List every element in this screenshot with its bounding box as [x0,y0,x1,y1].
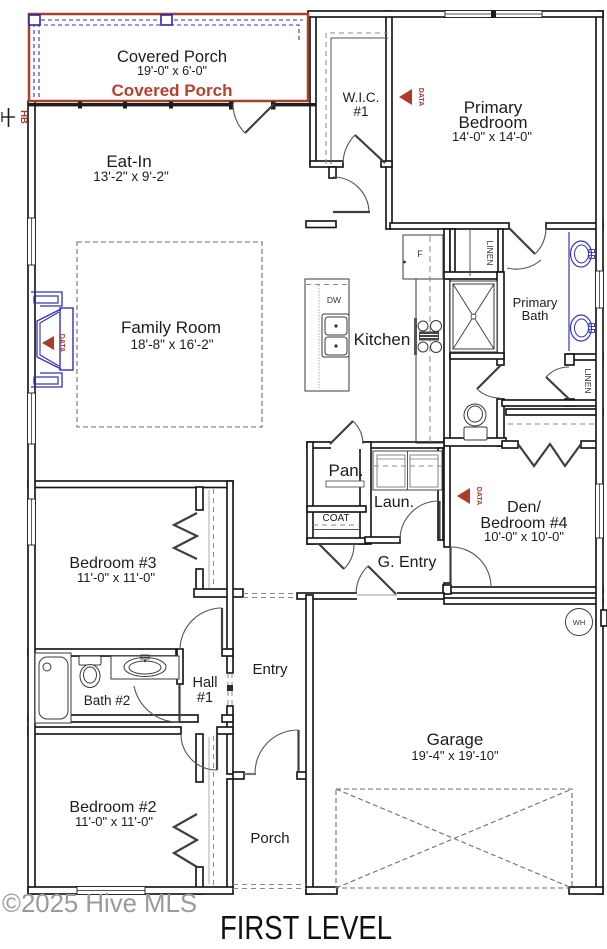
svg-text:W.I.C.: W.I.C. [343,90,380,105]
svg-text:11'-0" x 11'-0": 11'-0" x 11'-0" [77,570,155,585]
svg-text:#1: #1 [353,104,368,119]
svg-text:FIRST LEVEL: FIRST LEVEL [220,909,392,946]
svg-text:WH: WH [573,618,586,627]
svg-text:F: F [417,249,423,259]
svg-text:Garage: Garage [427,730,484,749]
svg-text:10'-0" x 10'-0": 10'-0" x 10'-0" [484,529,564,544]
svg-text:©2025 Hive MLS: ©2025 Hive MLS [2,888,197,918]
svg-text:#1: #1 [197,690,213,706]
svg-text:DW: DW [327,295,341,305]
svg-text:Covered Porch: Covered Porch [112,81,233,100]
svg-text:DATA: DATA [475,487,482,505]
svg-text:LINEN: LINEN [485,240,495,265]
svg-text:Family Room: Family Room [121,318,221,337]
svg-text:Pan.: Pan. [329,461,364,480]
svg-text:14'-0" x 14'-0": 14'-0" x 14'-0" [452,129,532,144]
svg-text:DATA: DATA [58,334,65,352]
svg-text:11'-0" x 11'-0": 11'-0" x 11'-0" [75,814,153,829]
svg-text:Bath #2: Bath #2 [84,693,131,708]
svg-text:LINEN: LINEN [583,368,593,393]
svg-text:Hall: Hall [193,675,218,691]
svg-text:HB: HB [18,110,29,124]
svg-text:COAT: COAT [322,513,349,524]
svg-text:Den/: Den/ [507,499,541,516]
svg-text:Porch: Porch [250,830,289,847]
svg-text:18'-8" x 16'-2": 18'-8" x 16'-2" [130,337,213,352]
svg-text:G. Entry: G. Entry [378,554,437,571]
svg-text:DATA: DATA [417,88,424,106]
svg-text:Entry: Entry [252,661,288,678]
svg-text:Laun.: Laun. [374,494,414,511]
svg-text:13'-2" x 9'-2": 13'-2" x 9'-2" [93,169,169,184]
svg-text:Bath: Bath [522,308,549,323]
svg-text:19'-4" x 19'-10": 19'-4" x 19'-10" [411,748,499,763]
svg-text:Kitchen: Kitchen [354,330,411,349]
svg-text:19'-0" x 6'-0": 19'-0" x 6'-0" [137,64,207,78]
